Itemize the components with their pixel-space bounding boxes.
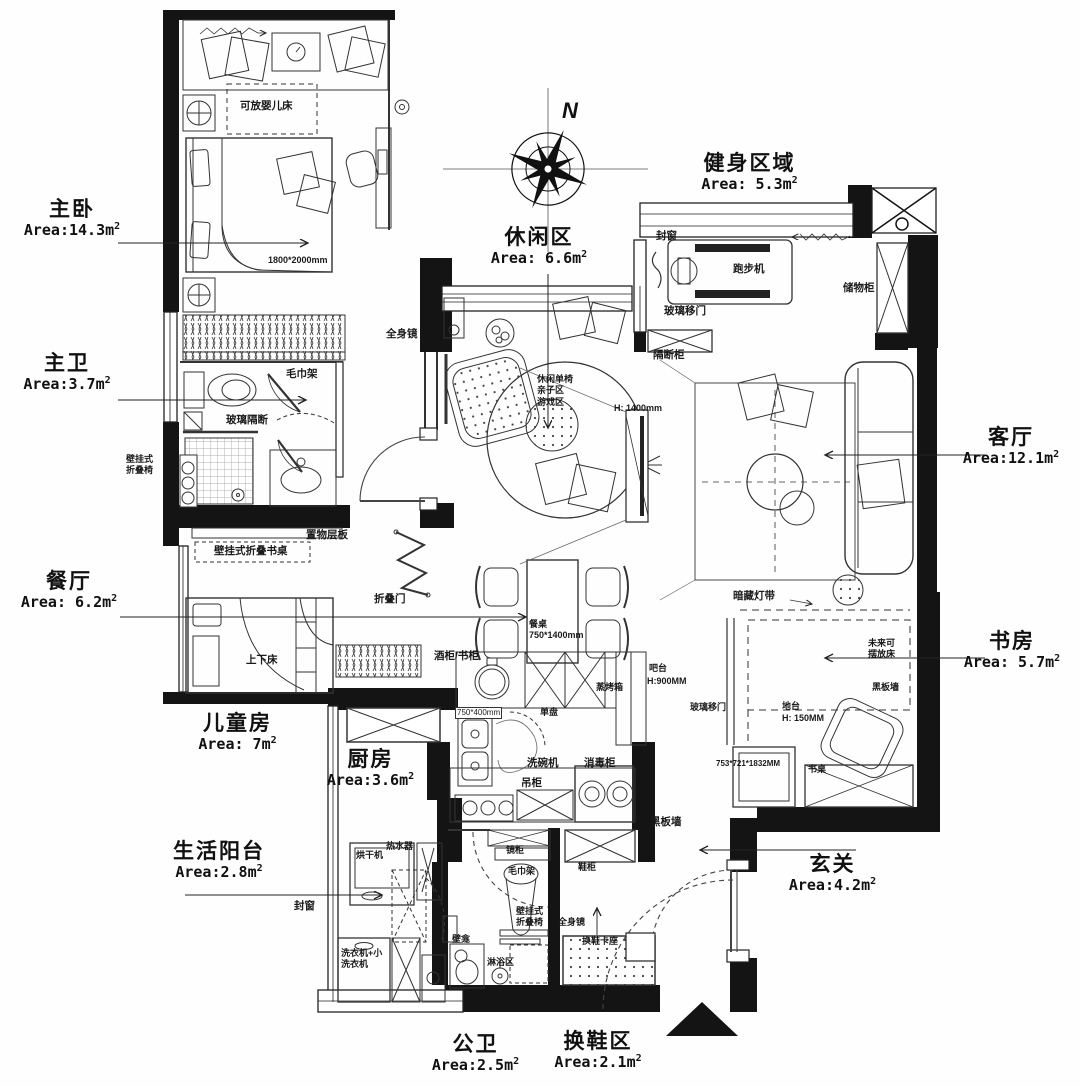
label-bunk-bed: 上下床 xyxy=(246,654,278,667)
label-full-mirror-2: 全身镜 xyxy=(558,917,585,928)
label-hanging-cabinet: 吊柜 xyxy=(521,777,542,790)
room-name: 生活阳台 xyxy=(158,840,280,863)
label-shower-area: 淋浴区 xyxy=(487,957,514,968)
balcony-fixtures xyxy=(338,843,445,1002)
room-label-dining: 餐厅 Area: 6.2m2 xyxy=(8,570,130,611)
label-partition-cabinet: 隔断柜 xyxy=(653,349,685,362)
room-area: Area: 5.7m2 xyxy=(948,653,1076,671)
label-tv-height: H: 1400mm xyxy=(614,403,662,414)
room-name: 健身区域 xyxy=(682,152,817,175)
label-glass-sliding-door-study: 玻璃移门 xyxy=(690,702,726,713)
label-glass-partition: 玻璃隔断 xyxy=(226,414,268,427)
compass-north-label: N xyxy=(562,98,578,124)
label-shoe-bench: 换鞋卡座 xyxy=(582,936,618,947)
door-frames xyxy=(420,428,749,962)
label-full-mirror: 全身镜 xyxy=(386,328,418,341)
label-dining-table: 餐桌 xyxy=(529,619,547,630)
master-bedroom-furniture xyxy=(183,20,409,360)
label-blackboard-wall-study: 黑板墙 xyxy=(872,682,899,693)
label-hidden-light-strip: 暗藏灯带 xyxy=(733,590,775,603)
label-folding-door: 折叠门 xyxy=(374,593,406,606)
room-label-living: 客厅 Area:12.1m2 xyxy=(946,426,1076,467)
label-dining-table-size: 750*1400mm xyxy=(529,630,584,641)
room-area: Area:2.1m2 xyxy=(538,1053,658,1071)
label-wine-book-cabinet: 酒柜/书柜 xyxy=(434,650,479,663)
leisure-furniture xyxy=(441,297,712,564)
master-bath-fixtures xyxy=(180,372,336,507)
label-desk: 书桌 xyxy=(808,764,826,775)
room-label-study: 书房 Area: 5.7m2 xyxy=(948,630,1076,671)
room-area: Area: 6.6m2 xyxy=(470,249,608,267)
label-blackboard-wall-kitchen: 黑板墙 xyxy=(650,816,682,829)
label-sink-size: 750*400mm xyxy=(455,707,502,719)
label-washer: 洗衣机+小洗衣机 xyxy=(341,948,382,971)
label-bar-height: H:900MM xyxy=(647,676,687,687)
label-towel-rack: 毛巾架 xyxy=(286,368,318,381)
doors xyxy=(277,413,737,1010)
floor-plan: 主卧 Area:14.3m2 主卫 Area:3.7m2 餐厅 Area: 6.… xyxy=(0,0,1080,1086)
label-storage-cabinet: 储物柜 xyxy=(843,282,875,295)
label-wall-folding-chair-2: 壁挂式折叠椅 xyxy=(516,906,543,929)
label-single-basin: 单盘 xyxy=(540,707,558,718)
room-area: Area: 5.3m2 xyxy=(682,175,817,193)
label-cabinet-size: 753*721*1832MM xyxy=(716,759,780,769)
room-name: 厨房 xyxy=(318,748,423,771)
room-area: Area: 7m2 xyxy=(175,735,300,753)
room-name: 玄关 xyxy=(775,853,890,876)
room-name: 主卧 xyxy=(12,198,132,221)
label-sterilizer: 消毒柜 xyxy=(584,757,616,770)
room-area: Area:2.8m2 xyxy=(158,863,280,881)
room-label-balcony: 生活阳台 Area:2.8m2 xyxy=(158,840,280,881)
label-niche: 壁龛 xyxy=(452,934,470,945)
label-steam-oven: 蒸烤箱 xyxy=(596,682,623,693)
label-leisure-chair-zone: 休闲单椅 亲子区 游戏区 xyxy=(537,374,573,408)
label-future-bed: 未来可摆放床 xyxy=(868,638,895,661)
room-name: 书房 xyxy=(948,630,1076,653)
room-name: 餐厅 xyxy=(8,570,130,593)
label-bar-counter: 吧台 xyxy=(649,663,667,674)
room-area: Area:2.5m2 xyxy=(418,1056,533,1074)
label-platform-height: H: 150MM xyxy=(782,713,824,724)
room-label-leisure: 休闲区 Area: 6.6m2 xyxy=(470,226,608,267)
label-shelf-board: 置物层板 xyxy=(306,529,348,542)
room-area: Area:3.7m2 xyxy=(12,375,122,393)
label-sealed-window-gym: 封窗 xyxy=(656,230,677,243)
label-crib: 可放婴儿床 xyxy=(240,100,293,113)
room-area: Area:4.2m2 xyxy=(775,876,890,894)
label-platform: 地台 xyxy=(782,701,800,712)
label-dishwasher: 洗碗机 xyxy=(527,757,559,770)
room-label-kitchen: 厨房 Area:3.6m2 xyxy=(318,748,423,789)
living-furniture xyxy=(660,360,913,610)
room-name: 休闲区 xyxy=(470,226,608,249)
room-name: 公卫 xyxy=(418,1033,533,1056)
room-name: 儿童房 xyxy=(175,712,300,735)
room-name: 换鞋区 xyxy=(538,1030,658,1053)
label-dryer: 烘干机 xyxy=(356,850,383,861)
label-mirror-cabinet: 镜柜 xyxy=(506,845,524,856)
label-bed-size: 1800*2000mm xyxy=(268,255,328,266)
room-name: 客厅 xyxy=(946,426,1076,449)
label-wall-folding-desk: 壁挂式折叠书桌 xyxy=(214,545,288,558)
label-water-heater: 热水器 xyxy=(386,841,413,852)
room-name: 主卫 xyxy=(12,352,122,375)
room-area: Area:12.1m2 xyxy=(946,449,1076,467)
label-sealed-window-balcony: 封窗 xyxy=(294,900,315,913)
label-towel-rack-2: 毛巾架 xyxy=(508,866,535,877)
room-label-gym: 健身区域 Area: 5.3m2 xyxy=(682,152,817,193)
room-area: Area:14.3m2 xyxy=(12,221,132,239)
label-glass-sliding-door-gym: 玻璃移门 xyxy=(664,305,706,318)
room-label-entry: 玄关 Area:4.2m2 xyxy=(775,853,890,894)
room-label-public-bath: 公卫 Area:2.5m2 xyxy=(418,1033,533,1074)
room-label-shoe-area: 换鞋区 Area:2.1m2 xyxy=(538,1030,658,1071)
room-label-master-bedroom: 主卧 Area:14.3m2 xyxy=(12,198,132,239)
room-area: Area: 6.2m2 xyxy=(8,593,130,611)
label-wall-folding-chair: 壁挂式折叠椅 xyxy=(126,454,153,477)
room-label-master-bath: 主卫 Area:3.7m2 xyxy=(12,352,122,393)
room-area: Area:3.6m2 xyxy=(318,771,423,789)
room-label-kids: 儿童房 Area: 7m2 xyxy=(175,712,300,753)
label-treadmill: 跑步机 xyxy=(733,263,765,276)
label-shoe-cabinet: 鞋柜 xyxy=(578,862,596,873)
